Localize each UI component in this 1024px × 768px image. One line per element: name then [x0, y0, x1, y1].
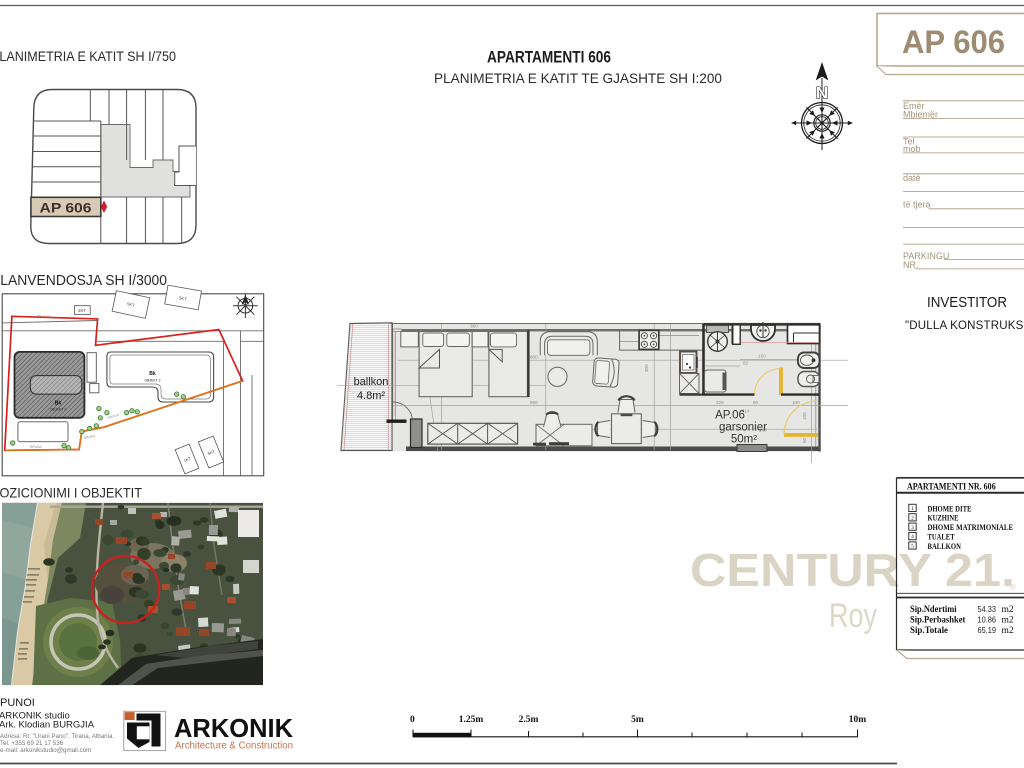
- svg-text:1.25m: 1.25m: [459, 715, 484, 725]
- svg-text:Adresa: Rr. "Urani Pano", Tira: Adresa: Rr. "Urani Pano", Tirana, Albani…: [0, 733, 114, 740]
- svg-text:0: 0: [410, 715, 415, 725]
- svg-text:5m: 5m: [631, 715, 644, 725]
- svg-text:ARKONIK: ARKONIK: [174, 713, 293, 743]
- svg-text:Tel. +355 69 21 17 536: Tel. +355 69 21 17 536: [0, 740, 64, 747]
- svg-text:10m: 10m: [849, 715, 867, 725]
- svg-text:2.5m: 2.5m: [519, 715, 539, 725]
- svg-text:Architecture & Construction: Architecture & Construction: [175, 741, 293, 752]
- svg-text:e-mail: arkonikstudio@gmail.co: e-mail: arkonikstudio@gmail.com: [0, 747, 91, 754]
- svg-text:PUNOI: PUNOI: [0, 697, 35, 709]
- svg-text:Ark. Klodian BURGJIA: Ark. Klodian BURGJIA: [0, 720, 95, 731]
